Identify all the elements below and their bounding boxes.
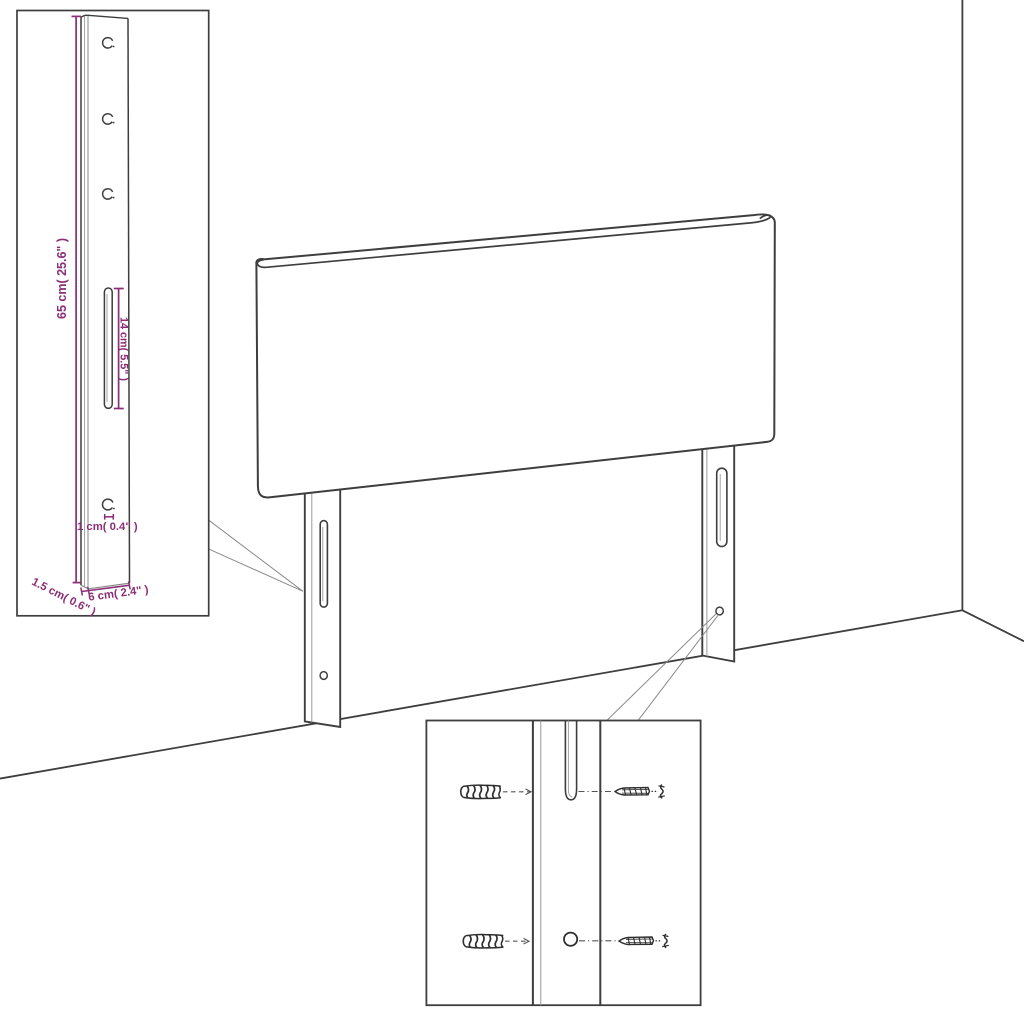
svg-text:14 cm( 5.5" ): 14 cm( 5.5" ): [118, 317, 130, 381]
svg-text:65 cm( 25.6" ): 65 cm( 25.6" ): [55, 238, 69, 319]
svg-text:1 cm( 0.4" ): 1 cm( 0.4" ): [77, 521, 138, 533]
